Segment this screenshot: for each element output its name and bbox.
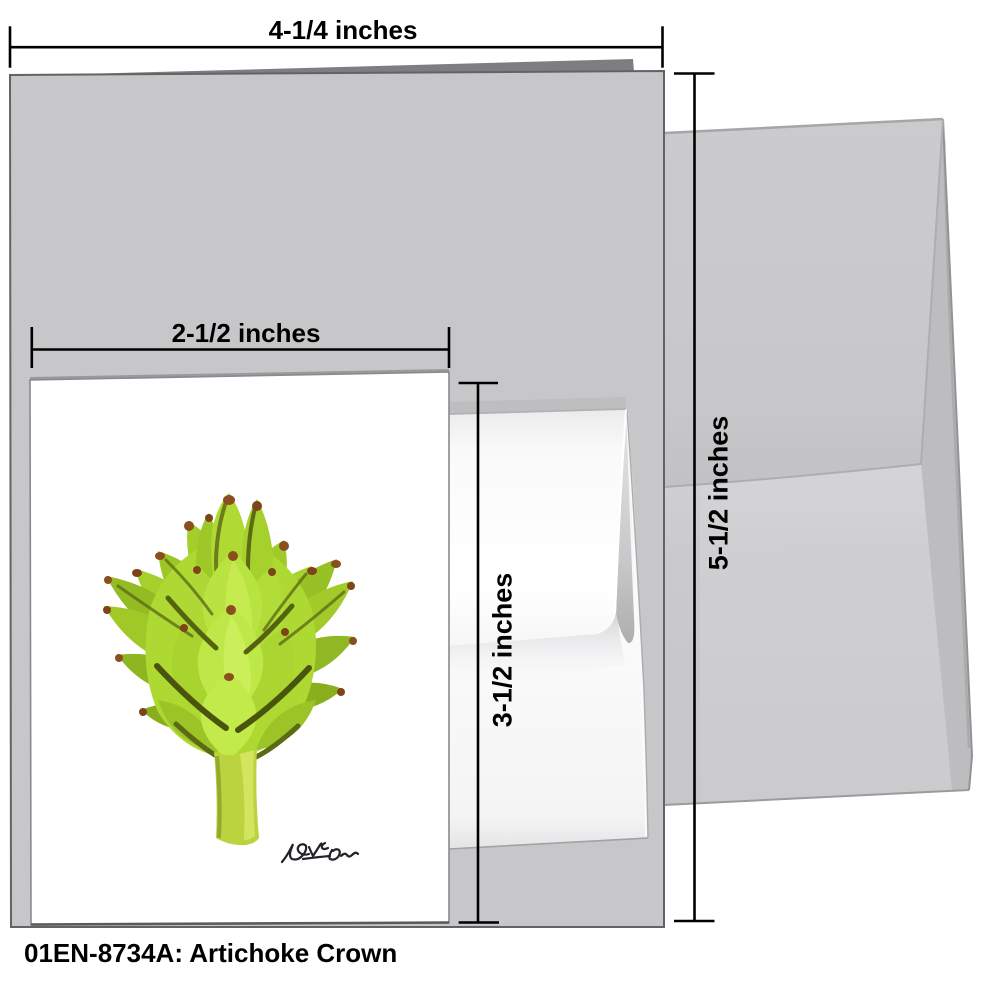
svg-text:2-1/2 inches: 2-1/2 inches [172, 318, 321, 348]
svg-text:4-1/4 inches: 4-1/4 inches [269, 15, 418, 45]
svg-text:5-1/2 inches: 5-1/2 inches [704, 416, 734, 571]
svg-text:3-1/2 inches: 3-1/2 inches [488, 573, 518, 728]
svg-text:01EN-8734A: Artichoke Crown: 01EN-8734A: Artichoke Crown [24, 938, 397, 968]
